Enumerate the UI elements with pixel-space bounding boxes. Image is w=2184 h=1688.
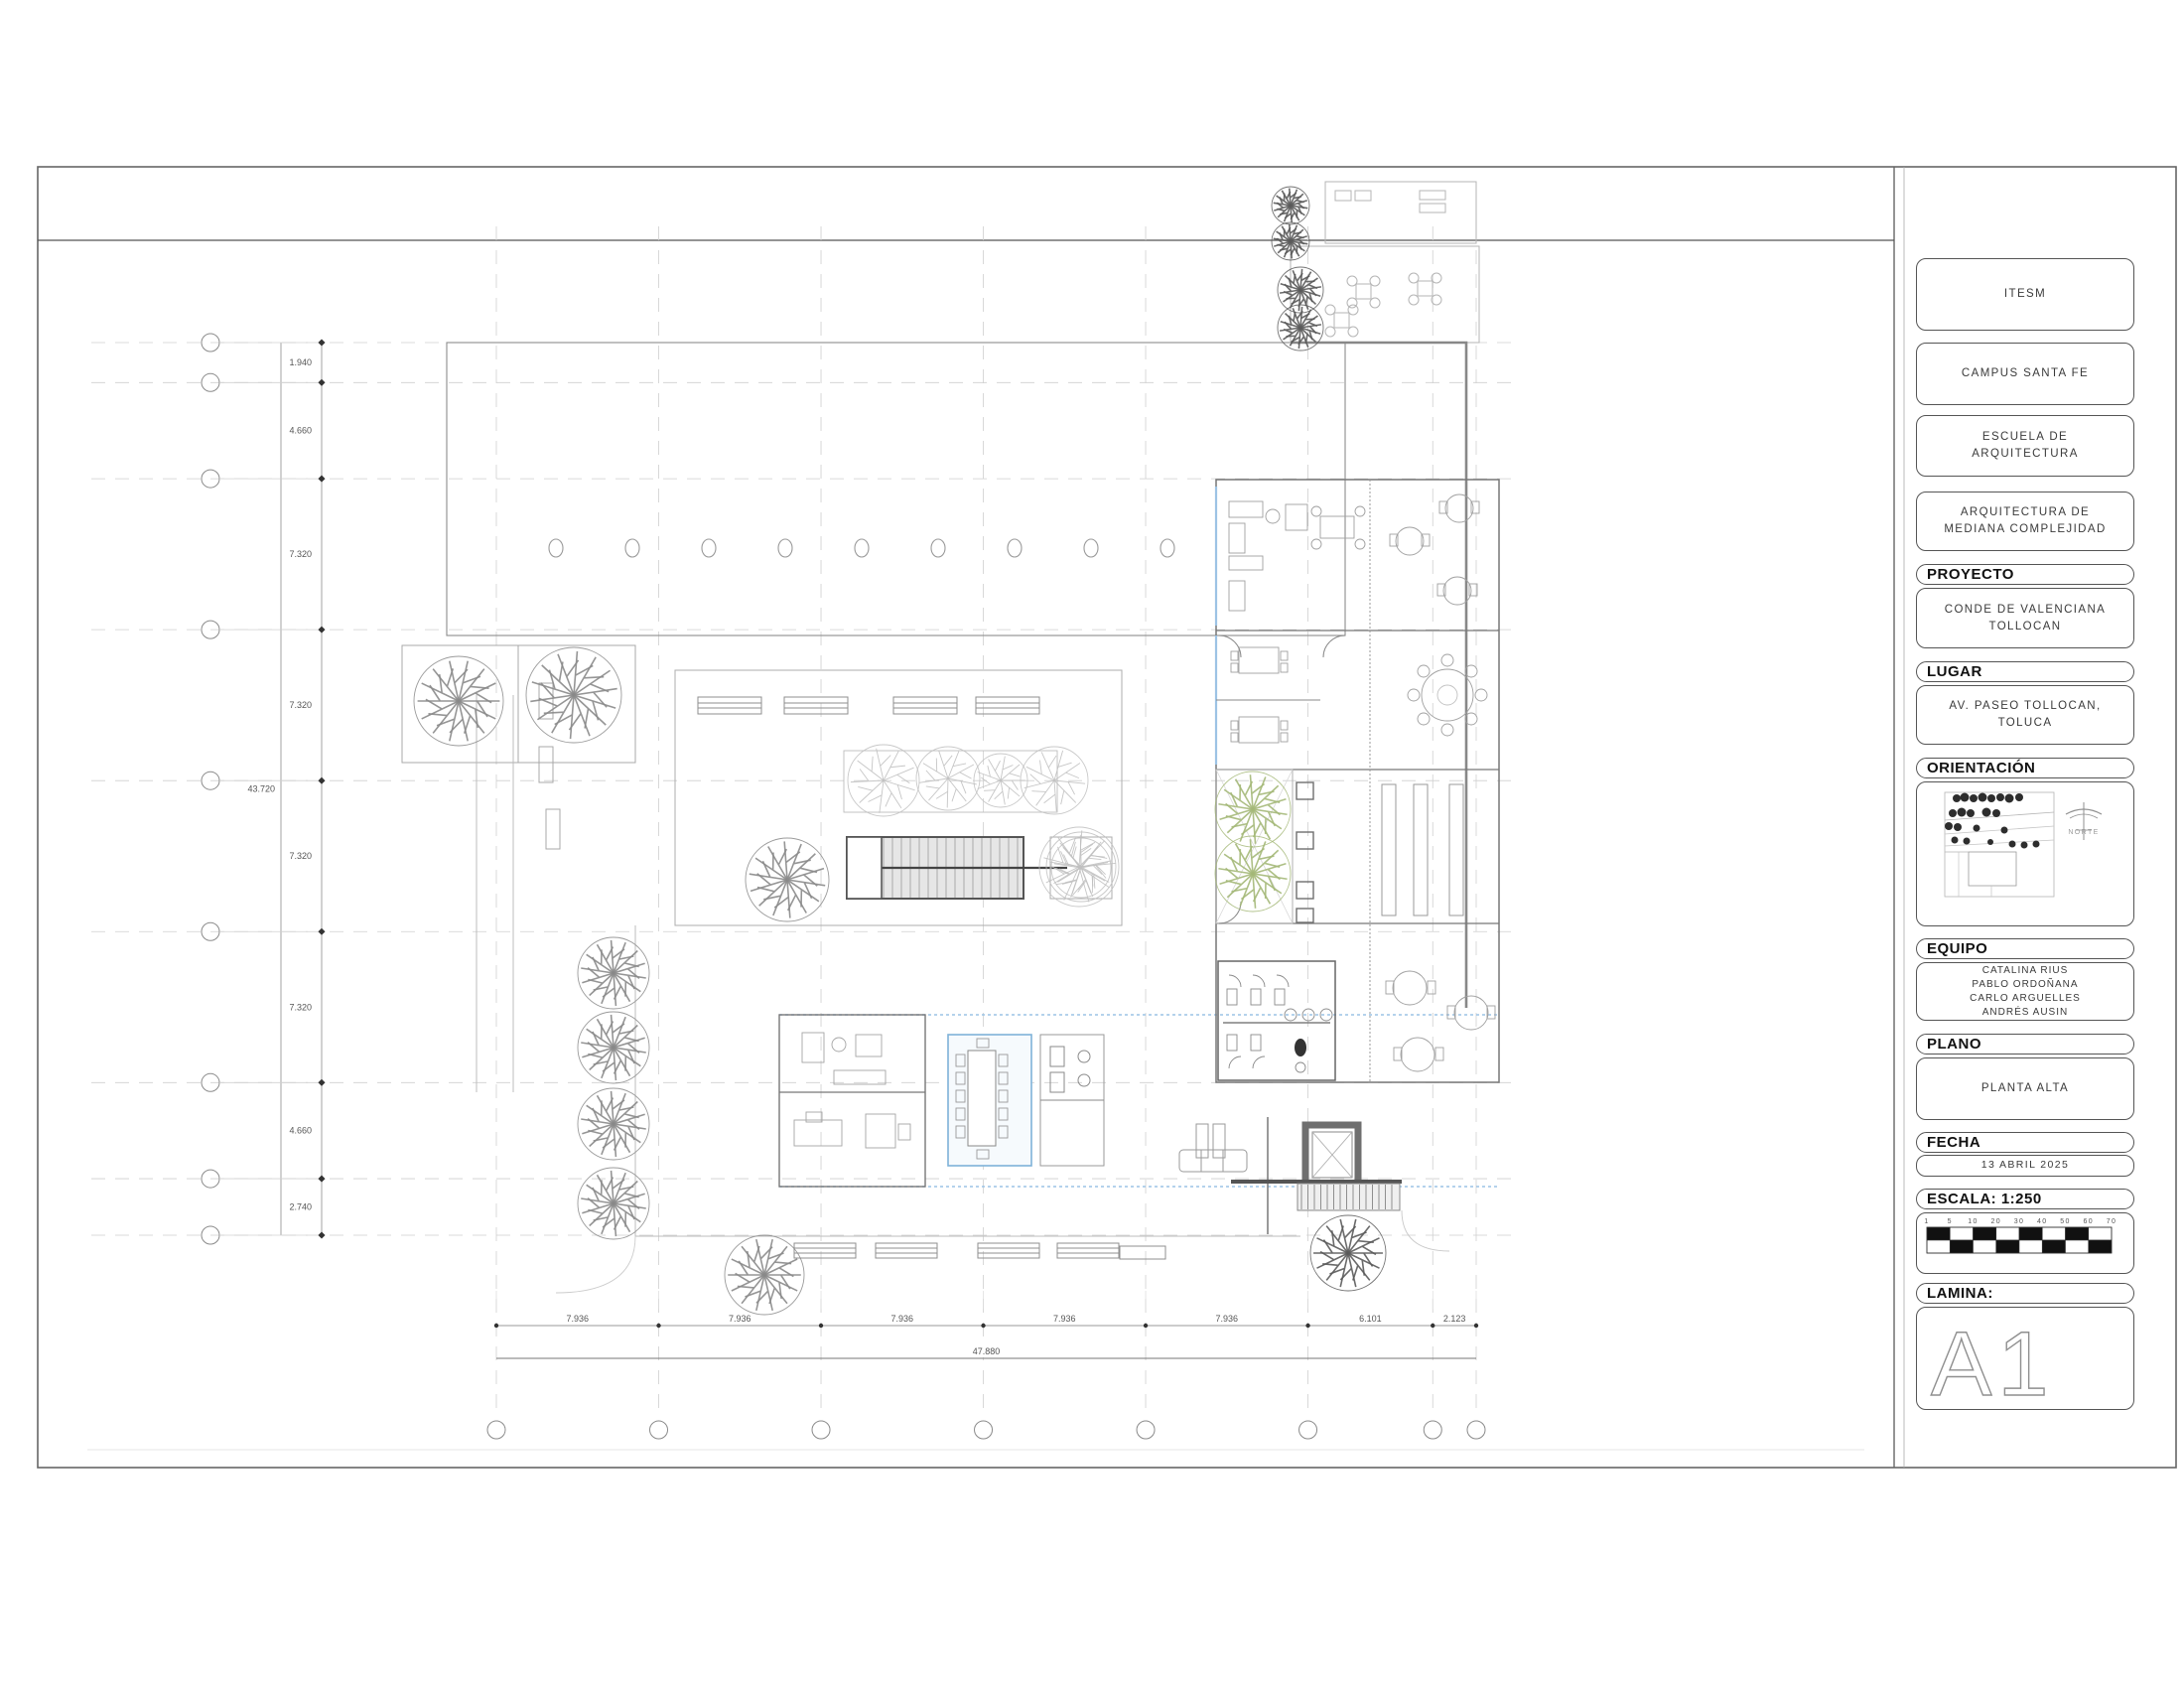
lamina-header: LAMINA:	[1916, 1283, 2134, 1304]
tree-icon	[578, 1088, 649, 1160]
scale-bar-box: 1510203040506070	[1916, 1212, 2134, 1274]
proyecto-header: PROYECTO	[1916, 564, 2134, 585]
dimension-label: 1.940	[289, 357, 312, 367]
office-furniture	[794, 1033, 910, 1148]
locker-corridor	[1297, 782, 1313, 922]
central-courtyard	[675, 670, 1122, 925]
stair-main	[847, 837, 1067, 899]
grid-bubble	[1424, 1421, 1441, 1439]
tree-icon	[1272, 187, 1309, 224]
dimension-label: 7.936	[566, 1314, 589, 1324]
titleblock-campus: CAMPUS SANTA FE	[1916, 343, 2134, 405]
tree-icon	[1278, 267, 1323, 313]
dimension-total-label: 47.880	[973, 1346, 1001, 1356]
benches-bottom	[794, 1243, 1165, 1259]
drawing-sheet: 1.9404.6607.3207.3207.3207.3204.6602.740…	[0, 0, 2184, 1688]
dimension-label: 6.101	[1359, 1314, 1382, 1324]
dimension-label: 4.660	[289, 426, 312, 436]
lobby-lounge	[1179, 1117, 1268, 1234]
dimension-label: 4.660	[289, 1126, 312, 1136]
tree-icon	[1310, 1215, 1386, 1291]
grid-bubble	[812, 1421, 830, 1439]
grid-bubble	[1467, 1421, 1485, 1439]
meeting-rooms	[1216, 647, 1487, 743]
plano-header: PLANO	[1916, 1034, 2134, 1055]
grid-bubble	[1299, 1421, 1317, 1439]
tree-icon	[1272, 222, 1309, 260]
restrooms	[1218, 961, 1335, 1080]
titleblock-institution: ITESM	[1916, 258, 2134, 331]
course-line2: MEDIANA COMPLEJIDAD	[1917, 521, 2133, 538]
lounge-room	[1229, 501, 1365, 611]
grid-bubble	[1137, 1421, 1155, 1439]
scale-tick-label: 1	[1924, 1218, 1929, 1225]
dimension-label: 7.320	[289, 549, 312, 559]
dimension-total-label: 43.720	[247, 784, 275, 794]
lugar-header: LUGAR	[1916, 661, 2134, 682]
site-trees	[1945, 793, 2040, 849]
proyecto-line1: CONDE DE VALENCIANA	[1917, 602, 2133, 619]
scale-tick-label: 30	[2014, 1218, 2025, 1225]
lugar-line2: TOLUCA	[1917, 715, 2133, 732]
orientacion-map-box: NORTE	[1916, 781, 2134, 926]
dimension-label: 7.936	[729, 1314, 751, 1324]
equipo-header: EQUIPO	[1916, 938, 2134, 959]
team-member: ANDRÉS AUSIN	[1917, 1006, 2133, 1020]
study-room-tables	[1386, 971, 1495, 1071]
dimension-label: 2.740	[289, 1202, 312, 1212]
top-hall	[447, 343, 1345, 635]
school-line1: ESCUELA DE	[1917, 429, 2133, 446]
stripe-room	[1382, 784, 1463, 915]
dimension-label: 7.320	[289, 1002, 312, 1012]
sheet-border	[38, 167, 2176, 1468]
campus-label: CAMPUS SANTA FE	[1962, 365, 2089, 382]
scale-tick-label: 70	[2107, 1218, 2117, 1225]
cafe-tables	[1325, 273, 1441, 337]
tree-icon	[578, 937, 649, 1009]
roof-terrace	[1291, 182, 1479, 343]
escala-header: ESCALA: 1:250	[1916, 1189, 2134, 1209]
proyecto-line2: TOLLOCAN	[1917, 619, 2133, 635]
scale-tick-label: 60	[2083, 1218, 2094, 1225]
tree-icon	[414, 656, 503, 746]
lamina-big-text: A1	[1917, 1308, 2133, 1409]
team-member: CATALINA RIUS	[1917, 964, 2133, 978]
grid-bubble	[975, 1421, 993, 1439]
titleblock-lugar: AV. PASEO TOLLOCAN, TOLUCA	[1916, 685, 2134, 745]
tree-icon	[916, 747, 980, 810]
scale-tick-label: 40	[2037, 1218, 2048, 1225]
floor-plan-svg: 1.9404.6607.3207.3207.3207.3204.6602.740…	[0, 0, 2184, 1688]
tree-icon	[526, 647, 621, 743]
titleblock-school: ESCUELA DE ARQUITECTURA	[1916, 415, 2134, 477]
institution-label: ITESM	[2004, 286, 2046, 303]
tree-icon	[578, 1168, 649, 1239]
titleblock-fecha: 13 ABRIL 2025	[1916, 1155, 2134, 1177]
orientacion-header: ORIENTACIÓN	[1916, 758, 2134, 778]
column-row	[549, 539, 1174, 557]
grid-bubble	[650, 1421, 668, 1439]
conference-room	[948, 1035, 1031, 1166]
team-member: PABLO ORDOÑANA	[1917, 978, 2133, 992]
graphic-scale-bar: 1510203040506070	[1917, 1213, 2123, 1265]
elevator	[1305, 1125, 1358, 1182]
team-member: CARLO ARGUELLES	[1917, 992, 2133, 1006]
dimension-label: 7.936	[891, 1314, 914, 1324]
titleblock-equipo: CATALINA RIUS PABLO ORDOÑANA CARLO ARGUE…	[1916, 962, 2134, 1021]
lamina-value: A1	[1931, 1314, 2055, 1409]
scale-tick-label: 5	[1948, 1218, 1953, 1225]
benches-top	[698, 697, 1039, 714]
dimension-label: 7.936	[1216, 1314, 1239, 1324]
outer-wall	[1291, 343, 1466, 1008]
print-room	[1040, 1035, 1104, 1166]
dimension-label: 7.320	[289, 851, 312, 861]
grid-bubble	[487, 1421, 505, 1439]
titleblock-proyecto: CONDE DE VALENCIANA TOLLOCAN	[1916, 588, 2134, 648]
titleblock-course: ARQUITECTURA DE MEDIANA COMPLEJIDAD	[1916, 492, 2134, 551]
dimension-label: 7.936	[1053, 1314, 1076, 1324]
site-map-thumbnail: NORTE	[1917, 782, 2116, 912]
dimension-label: 7.320	[289, 700, 312, 710]
course-line1: ARQUITECTURA DE	[1917, 504, 2133, 521]
tree-icon	[746, 838, 829, 921]
school-line2: ARQUITECTURA	[1917, 446, 2133, 463]
scale-tick-label: 10	[1968, 1218, 1979, 1225]
tree-icon	[578, 1012, 649, 1083]
plano-value: PLANTA ALTA	[1981, 1080, 2069, 1097]
titleblock-lamina: A1	[1916, 1307, 2134, 1410]
tree-icon	[725, 1235, 804, 1315]
norte-label: NORTE	[2068, 829, 2099, 836]
dimension-label: 2.123	[1443, 1314, 1466, 1324]
titleblock-plano: PLANTA ALTA	[1916, 1057, 2134, 1120]
lugar-line1: AV. PASEO TOLLOCAN,	[1917, 698, 2133, 715]
fecha-value: 13 ABRIL 2025	[1981, 1158, 2069, 1173]
scale-tick-label: 20	[1990, 1218, 2001, 1225]
fecha-header: FECHA	[1916, 1132, 2134, 1153]
lower-wing	[556, 925, 1499, 1293]
scale-tick-label: 50	[2060, 1218, 2071, 1225]
